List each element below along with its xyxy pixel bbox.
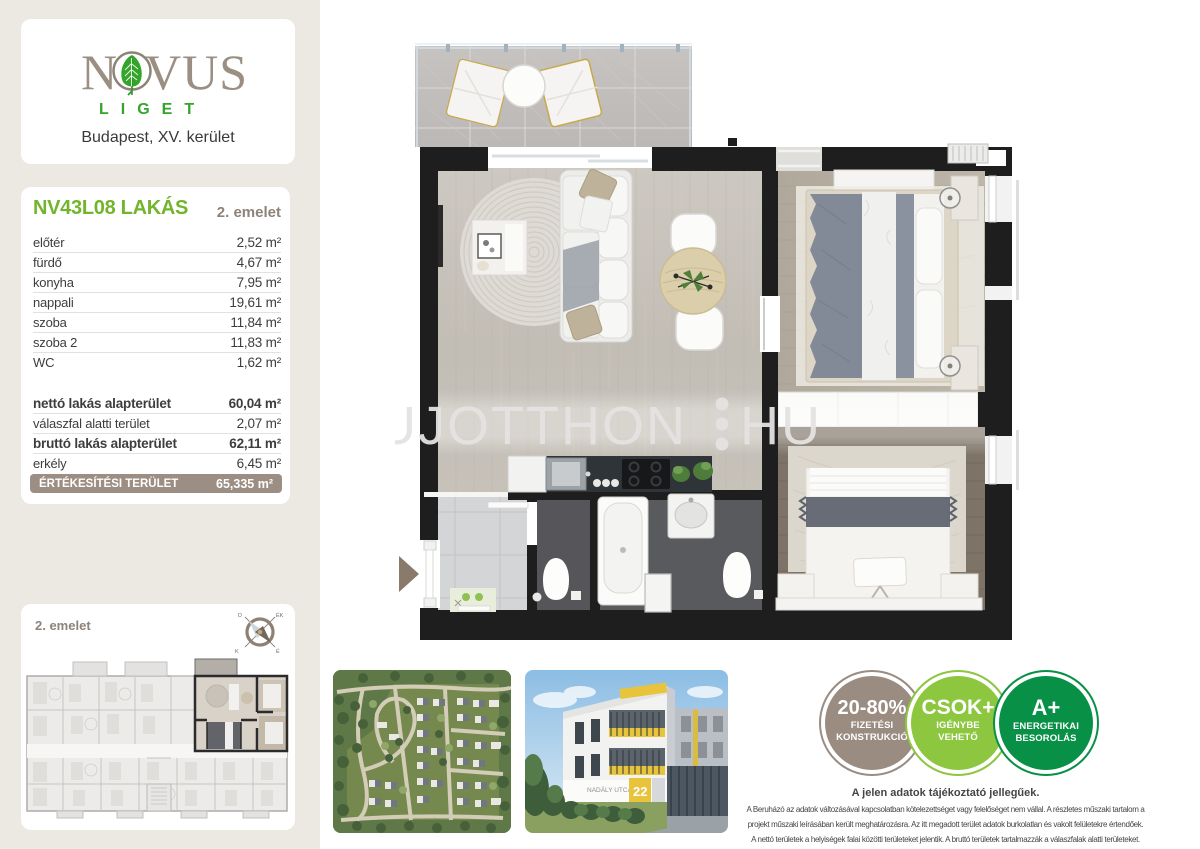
svg-text:É: É (276, 648, 280, 655)
svg-text:ÉK: ÉK (276, 612, 284, 619)
svg-text:HU: HU (740, 396, 822, 456)
svg-text:NADÁLY UTCA: NADÁLY UTCA (587, 785, 633, 794)
svg-text:K: K (235, 649, 239, 655)
svg-text:VUS: VUS (145, 44, 248, 100)
svg-text:UJOTTHON: UJOTTHON (395, 396, 687, 456)
svg-text:LIGET: LIGET (99, 101, 206, 118)
svg-text:22: 22 (633, 784, 647, 799)
svg-text:D: D (238, 613, 242, 619)
